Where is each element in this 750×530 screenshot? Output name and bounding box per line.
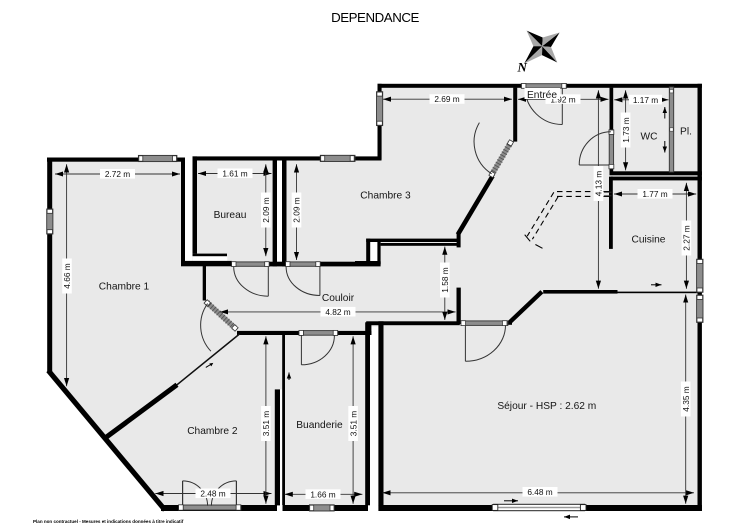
svg-text:Chambre 1: Chambre 1	[99, 282, 150, 293]
svg-text:DEPENDANCE: DEPENDANCE	[331, 10, 419, 25]
svg-text:2.09 m: 2.09 m	[292, 197, 302, 222]
svg-text:Pl.: Pl.	[680, 127, 692, 138]
svg-text:Chambre 2: Chambre 2	[187, 426, 238, 437]
svg-text:2.72 m: 2.72 m	[105, 169, 130, 179]
svg-text:Chambre 3: Chambre 3	[360, 191, 411, 202]
svg-text:4.82 m: 4.82 m	[325, 307, 350, 317]
svg-text:Buanderie: Buanderie	[296, 420, 343, 431]
svg-text:Couloir: Couloir	[322, 293, 355, 304]
svg-text:N: N	[517, 60, 528, 75]
svg-text:WC: WC	[641, 132, 658, 143]
svg-text:2.27 m: 2.27 m	[682, 225, 692, 250]
svg-text:1.61 m: 1.61 m	[222, 169, 247, 179]
svg-text:1.77 m: 1.77 m	[642, 189, 667, 199]
svg-text:1.17 m: 1.17 m	[633, 95, 658, 105]
svg-text:Bureau: Bureau	[214, 210, 247, 221]
svg-text:4.66 m: 4.66 m	[62, 263, 72, 288]
svg-text:3.51 m: 3.51 m	[348, 411, 358, 436]
svg-text:6.48 m: 6.48 m	[527, 487, 552, 497]
svg-text:4.13 m: 4.13 m	[594, 171, 604, 196]
svg-text:Plan non contractuel - Mesures: Plan non contractuel - Mesures et indica…	[33, 519, 184, 524]
svg-text:Cuisine: Cuisine	[632, 235, 666, 246]
svg-text:2.69 m: 2.69 m	[434, 94, 459, 104]
svg-text:4.35 m: 4.35 m	[681, 386, 691, 411]
svg-text:2.48 m: 2.48 m	[200, 489, 225, 499]
svg-text:3.51 m: 3.51 m	[261, 411, 271, 436]
svg-text:2.09 m: 2.09 m	[261, 197, 271, 222]
svg-text:1.73 m: 1.73 m	[621, 117, 631, 142]
svg-text:1.58 m: 1.58 m	[440, 267, 450, 292]
svg-text:1.66 m: 1.66 m	[310, 489, 335, 499]
svg-text:Entrée: Entrée	[527, 90, 557, 101]
svg-text:Séjour - HSP : 2.62 m: Séjour - HSP : 2.62 m	[497, 401, 596, 412]
